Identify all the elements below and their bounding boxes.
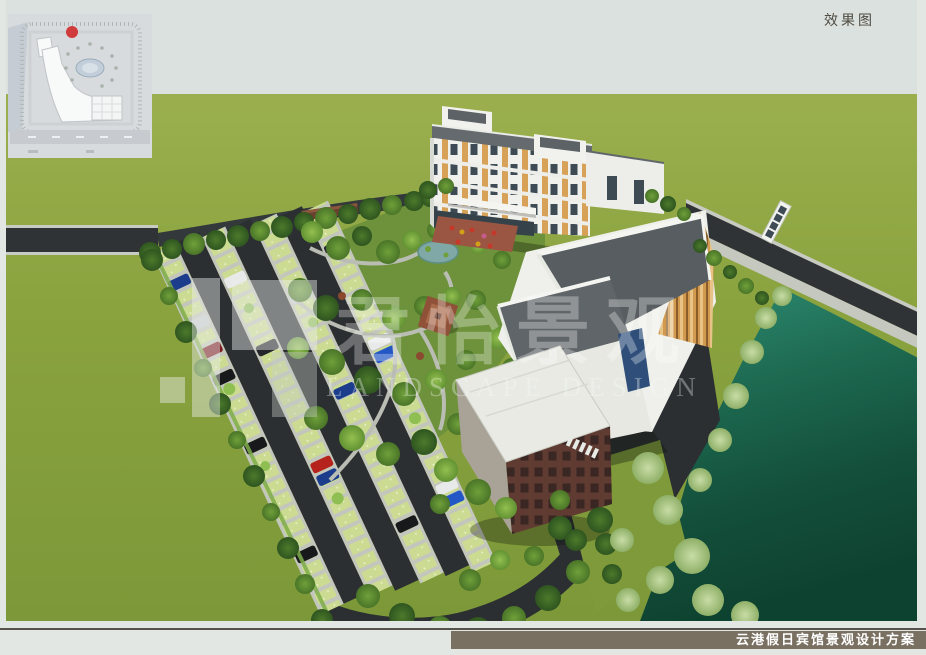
presentation-sheet: 君怡景观 LANDSCAPE DESIGN 效果图 云港假日宾馆景观设计方案	[0, 0, 926, 655]
project-title-bar: 云港假日宾馆景观设计方案	[451, 631, 926, 649]
sheet-title-label: 效果图	[824, 10, 875, 30]
location-marker	[66, 26, 78, 38]
site-plan-thumbnail	[8, 14, 152, 158]
west-road	[6, 225, 158, 255]
footer-rule	[0, 628, 926, 630]
